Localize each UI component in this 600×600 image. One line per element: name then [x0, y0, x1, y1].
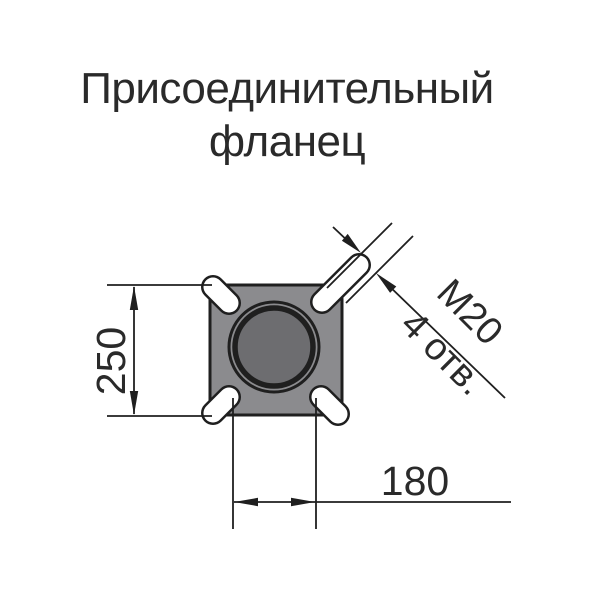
dim-value-height: 250 — [88, 327, 134, 395]
drawing-canvas: Присоединительный фланец — [0, 0, 600, 600]
flange-drawing: Присоединительный фланец — [0, 0, 600, 600]
slot-bottom-right — [321, 397, 338, 414]
page-title-line2: фланец — [209, 117, 366, 166]
dimension-height-250: 250 — [88, 285, 212, 416]
arrowhead-upper — [342, 234, 361, 253]
arrowhead-left — [234, 498, 258, 506]
dimension-spacing-180: 180 — [233, 398, 511, 529]
arrowhead-up — [130, 286, 138, 310]
page-title-line1: Присоединительный — [80, 64, 494, 113]
bore-inner-circle — [235, 308, 313, 386]
slot-top-left — [213, 287, 229, 303]
callout-bolt-holes: M20 4 отв. — [327, 223, 510, 404]
slot-bottom-left — [213, 397, 229, 413]
dim-value-spacing: 180 — [381, 458, 449, 504]
arrowhead-right — [291, 498, 315, 506]
